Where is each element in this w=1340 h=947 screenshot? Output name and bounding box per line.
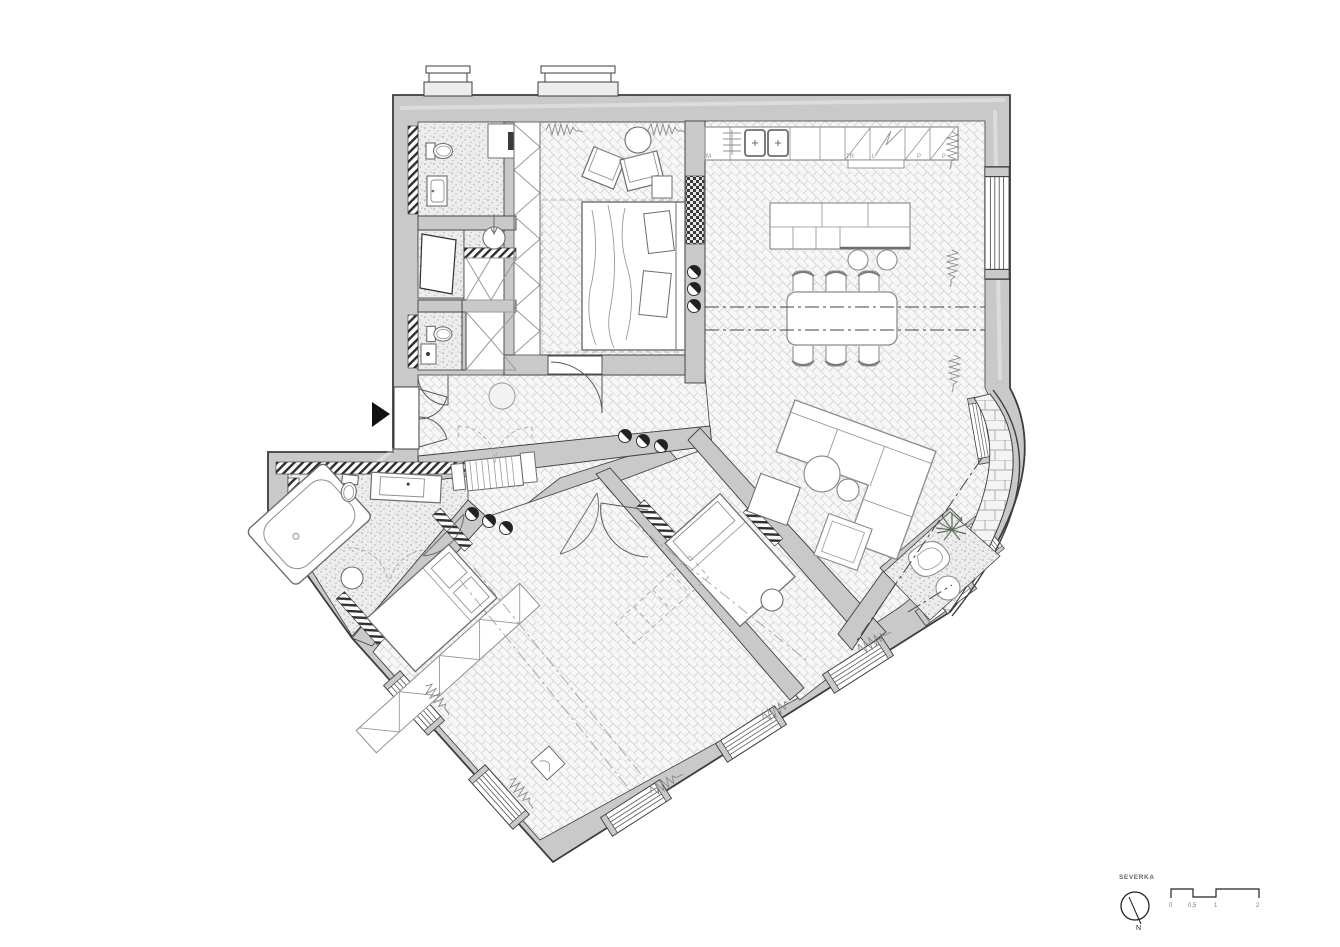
entrance-opening [394, 387, 419, 449]
appliance-label-p1: P [917, 154, 921, 160]
bedroom-door-opening [548, 356, 602, 374]
pedestal-sink [341, 567, 363, 589]
coffee-table-large [804, 456, 840, 492]
compass-icon [1121, 892, 1149, 920]
north-indicator: SEVERKA N [1119, 874, 1155, 932]
living-window [985, 167, 1009, 279]
dining-chairs-bottom [792, 346, 880, 366]
plant-table [625, 127, 651, 153]
floor-plan: M TR L P P [0, 0, 1340, 947]
appliance-label-dishwasher: M [706, 154, 711, 160]
scale-tick-1: 1 [1214, 903, 1218, 909]
ceiling-light [489, 383, 515, 409]
dining-table [787, 292, 897, 345]
chimney-stack-1 [424, 66, 472, 96]
appliance-label-oven: TR [846, 154, 855, 160]
coffee-table-small [837, 479, 859, 501]
scale-tick-0: 0 [1169, 903, 1173, 909]
north-letter: N [1136, 925, 1141, 932]
toilet-icon [427, 326, 452, 341]
vanity [370, 472, 441, 503]
scale-tick-2: 2 [1256, 903, 1260, 909]
scale-bar: 0 0,5 1 2 [1169, 889, 1260, 909]
winter-garden-table [936, 576, 960, 600]
north-label: SEVERKA [1119, 874, 1155, 881]
bedside-table3 [761, 589, 783, 611]
toilet-icon [426, 143, 453, 159]
shaft-hatch [686, 176, 704, 244]
chimney-stack-2 [538, 66, 618, 96]
pipe-columns [688, 265, 701, 312]
floor-plan-page: M TR L P P [0, 0, 1340, 947]
nightstand [652, 176, 672, 198]
sink-icon [427, 176, 447, 206]
open-door-leaf [420, 234, 456, 294]
dining-chairs-top [792, 271, 880, 291]
scale-tick-05: 0,5 [1188, 903, 1197, 909]
entrance-arrow-icon [372, 402, 390, 427]
appliance-label-p2: P [942, 154, 946, 160]
